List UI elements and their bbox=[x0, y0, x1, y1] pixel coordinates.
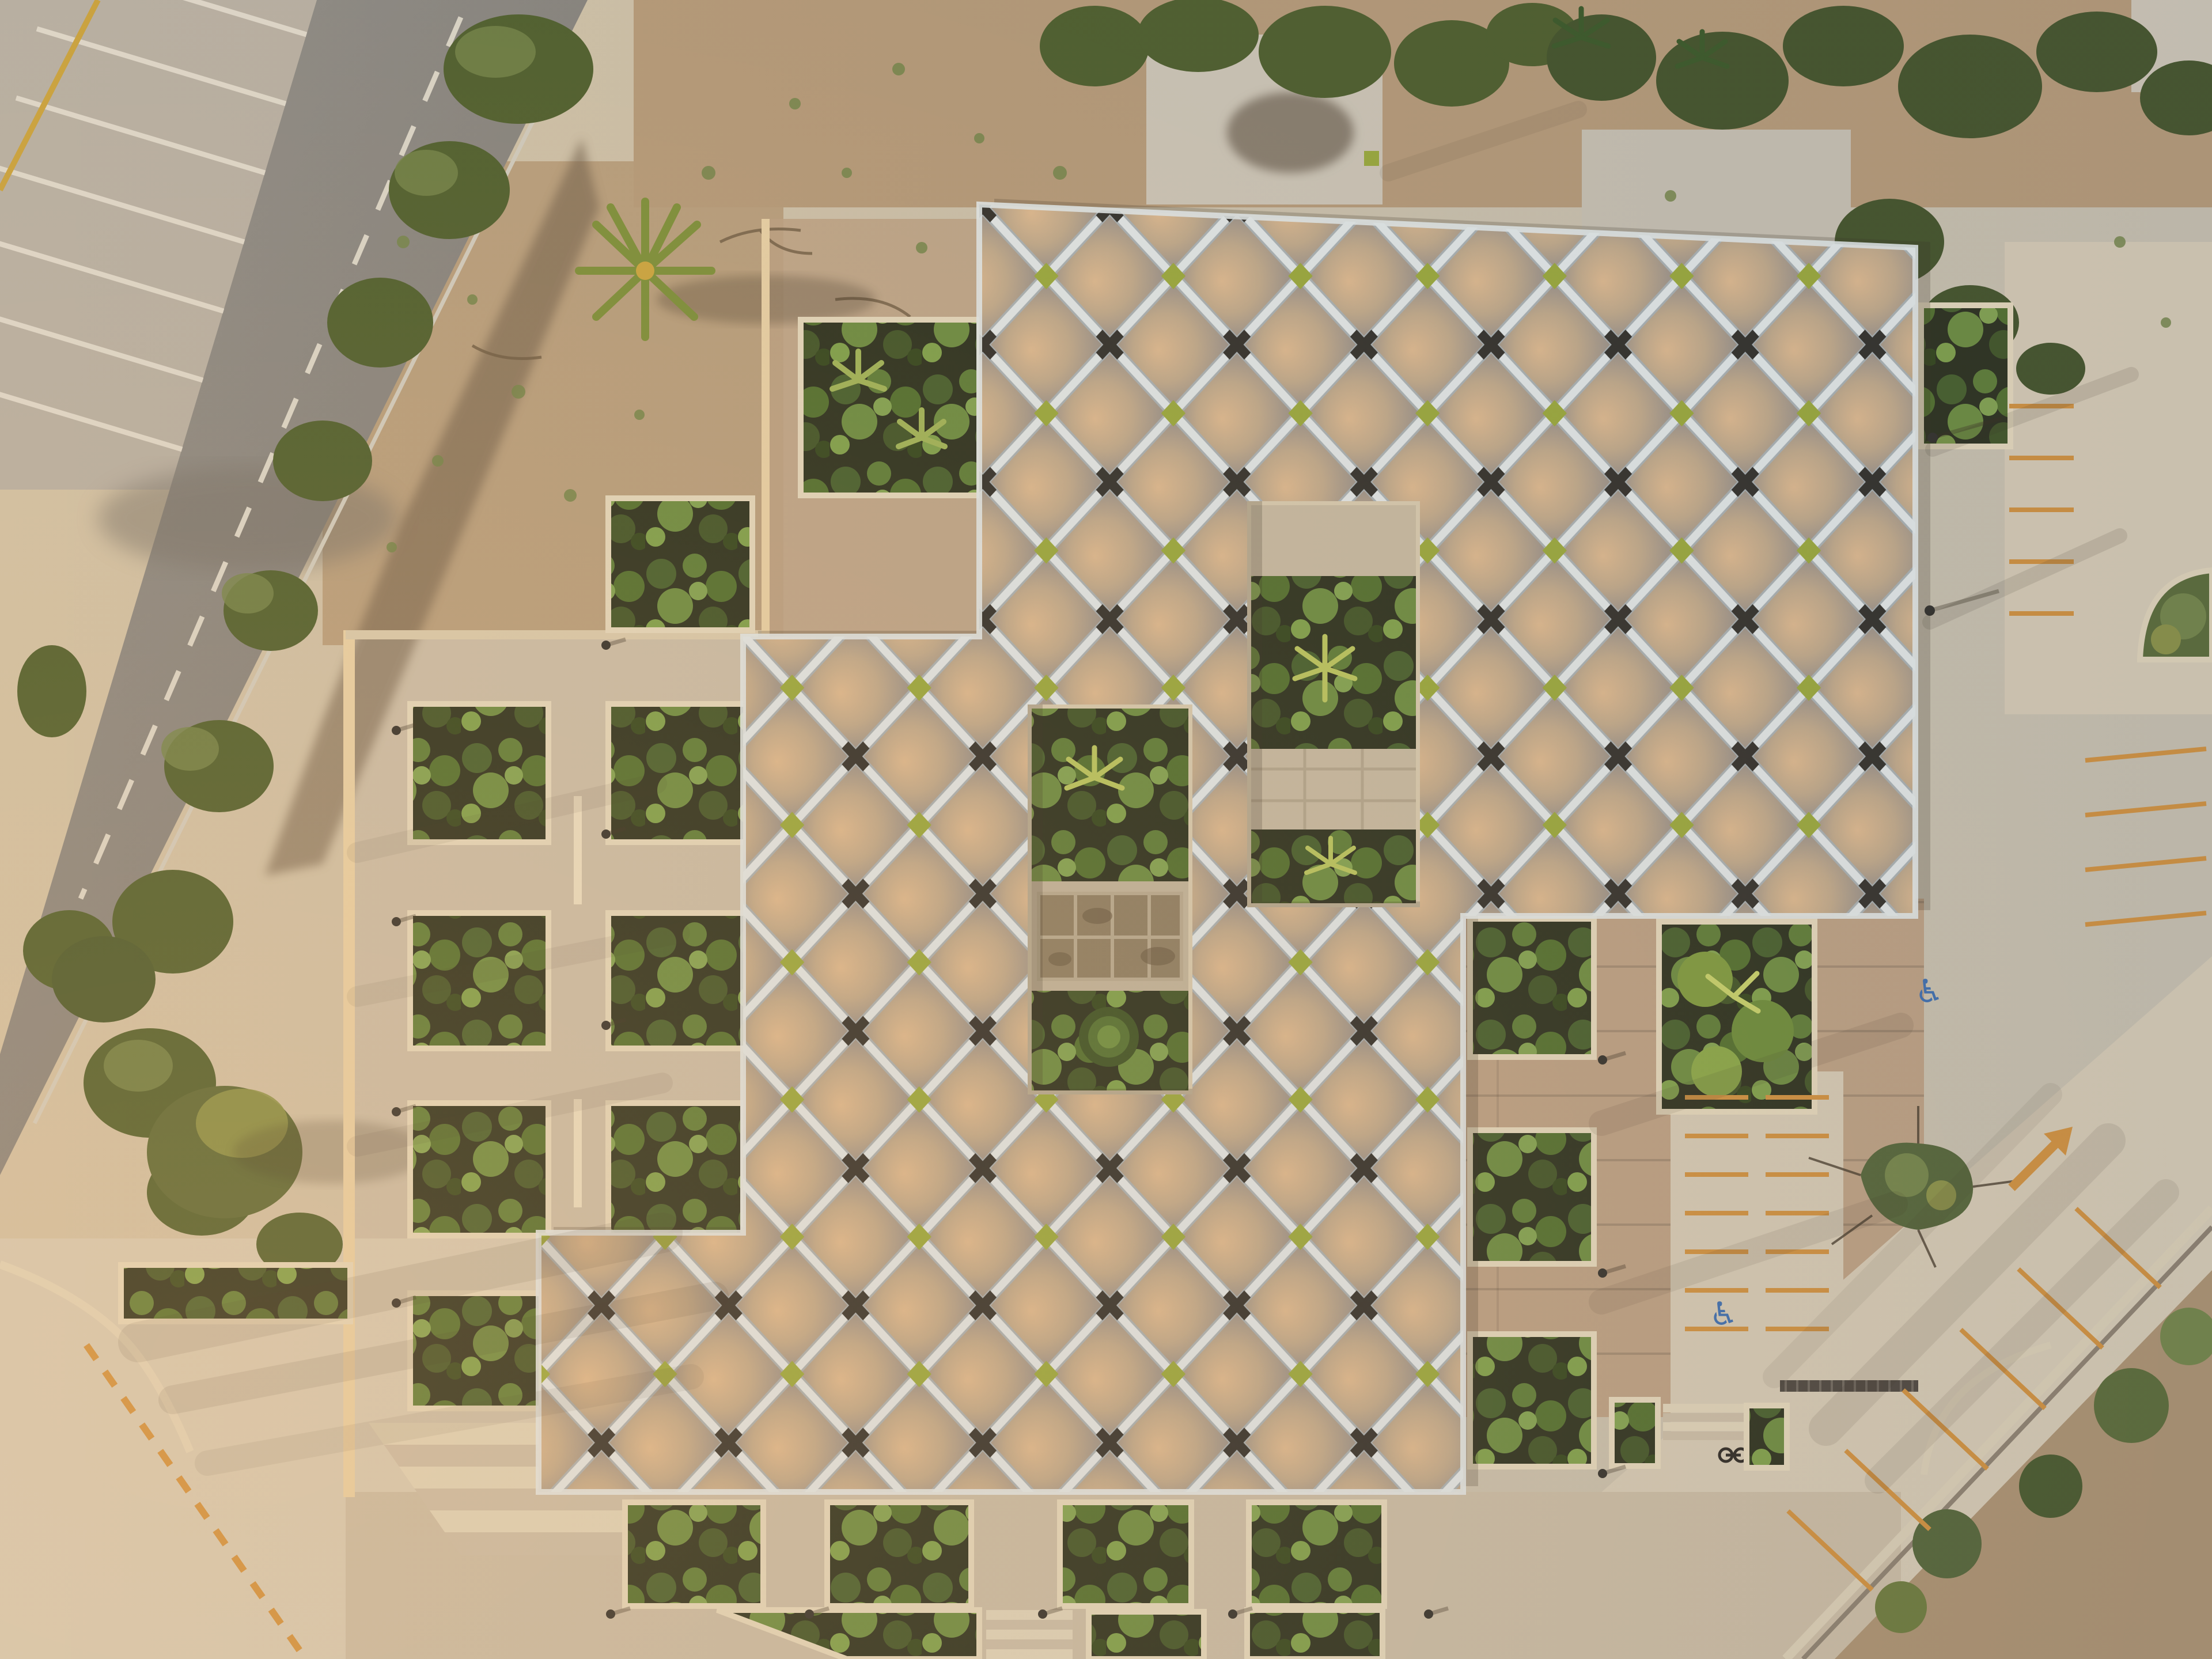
lighting bbox=[0, 0, 2212, 1659]
cool-east-shade bbox=[0, 0, 2212, 1659]
aerial-photo-canvas: ♿ ♿ bbox=[0, 0, 2212, 1659]
